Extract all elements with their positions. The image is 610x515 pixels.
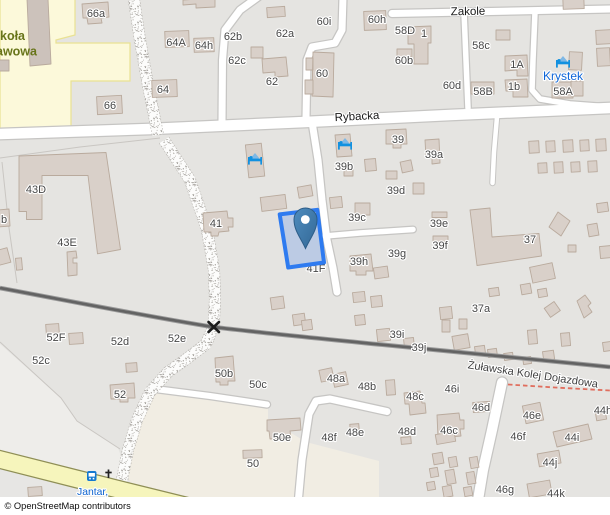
svg-text:39i: 39i xyxy=(390,329,405,341)
svg-text:46d: 46d xyxy=(472,402,490,414)
svg-text:Krystek: Krystek xyxy=(543,69,584,83)
svg-text:39d: 39d xyxy=(387,185,405,197)
svg-text:1: 1 xyxy=(421,28,427,40)
svg-text:39f: 39f xyxy=(432,240,448,252)
svg-text:39a: 39a xyxy=(425,149,444,161)
svg-text:39b: 39b xyxy=(335,161,353,173)
svg-text:39h: 39h xyxy=(350,256,368,268)
svg-text:39: 39 xyxy=(392,134,404,146)
svg-text:46e: 46e xyxy=(523,410,541,422)
svg-text:41: 41 xyxy=(210,218,222,230)
svg-text:52e: 52e xyxy=(168,333,186,345)
svg-text:46f: 46f xyxy=(510,431,526,443)
svg-text:50c: 50c xyxy=(249,379,267,391)
svg-text:48a: 48a xyxy=(327,373,346,385)
svg-text:46c: 46c xyxy=(440,425,458,437)
svg-text:39j: 39j xyxy=(412,342,427,354)
svg-text:46i: 46i xyxy=(445,384,460,396)
svg-text:62a: 62a xyxy=(276,28,295,40)
svg-text:1b: 1b xyxy=(508,81,520,93)
svg-text:50e: 50e xyxy=(273,432,291,444)
svg-text:60h: 60h xyxy=(368,14,386,26)
svg-text:60i: 60i xyxy=(317,16,332,28)
svg-text:58c: 58c xyxy=(472,40,490,52)
svg-text:39e: 39e xyxy=(430,218,448,230)
svg-text:62: 62 xyxy=(266,76,278,88)
svg-text:48f: 48f xyxy=(321,432,337,444)
svg-text:60: 60 xyxy=(316,68,328,80)
svg-text:64A: 64A xyxy=(166,37,186,49)
svg-text:48d: 48d xyxy=(398,426,416,438)
svg-text:Rybacka: Rybacka xyxy=(334,110,380,124)
svg-text:58D: 58D xyxy=(395,25,415,37)
svg-text:37a: 37a xyxy=(472,303,491,315)
svg-text:62b: 62b xyxy=(224,31,242,43)
svg-text:39g: 39g xyxy=(388,248,406,260)
svg-text:39c: 39c xyxy=(348,212,366,224)
svg-text:60b: 60b xyxy=(395,55,413,67)
svg-text:50b: 50b xyxy=(215,368,233,380)
svg-text:46g: 46g xyxy=(496,484,514,496)
svg-text:koła: koła xyxy=(0,29,26,43)
svg-text:60d: 60d xyxy=(443,80,461,92)
svg-text:48b: 48b xyxy=(358,381,376,393)
svg-text:52d: 52d xyxy=(111,336,129,348)
svg-text:64h: 64h xyxy=(195,40,213,52)
svg-text:44h: 44h xyxy=(594,405,610,417)
svg-text:b: b xyxy=(1,214,7,226)
svg-text:awowa: awowa xyxy=(0,45,38,59)
svg-text:58A: 58A xyxy=(553,86,573,98)
svg-text:58B: 58B xyxy=(473,86,493,98)
svg-text:© OpenStreetMap contributors: © OpenStreetMap contributors xyxy=(5,501,132,511)
svg-text:37: 37 xyxy=(524,234,536,246)
svg-text:62c: 62c xyxy=(228,55,246,67)
svg-text:43E: 43E xyxy=(57,237,77,249)
svg-text:44j: 44j xyxy=(543,457,558,469)
svg-text:52c: 52c xyxy=(32,355,50,367)
svg-text:44i: 44i xyxy=(565,432,580,444)
svg-text:1A: 1A xyxy=(510,59,524,71)
svg-text:Zakole: Zakole xyxy=(451,6,486,19)
svg-text:52: 52 xyxy=(114,389,126,401)
svg-text:43D: 43D xyxy=(26,184,46,196)
svg-text:Jantar,: Jantar, xyxy=(77,487,108,498)
svg-text:50: 50 xyxy=(247,458,259,470)
svg-text:48c: 48c xyxy=(406,391,424,403)
svg-text:64: 64 xyxy=(157,84,169,96)
svg-text:66a: 66a xyxy=(87,8,106,20)
svg-text:52F: 52F xyxy=(47,332,66,344)
svg-text:66: 66 xyxy=(104,100,116,112)
svg-text:48e: 48e xyxy=(346,427,364,439)
